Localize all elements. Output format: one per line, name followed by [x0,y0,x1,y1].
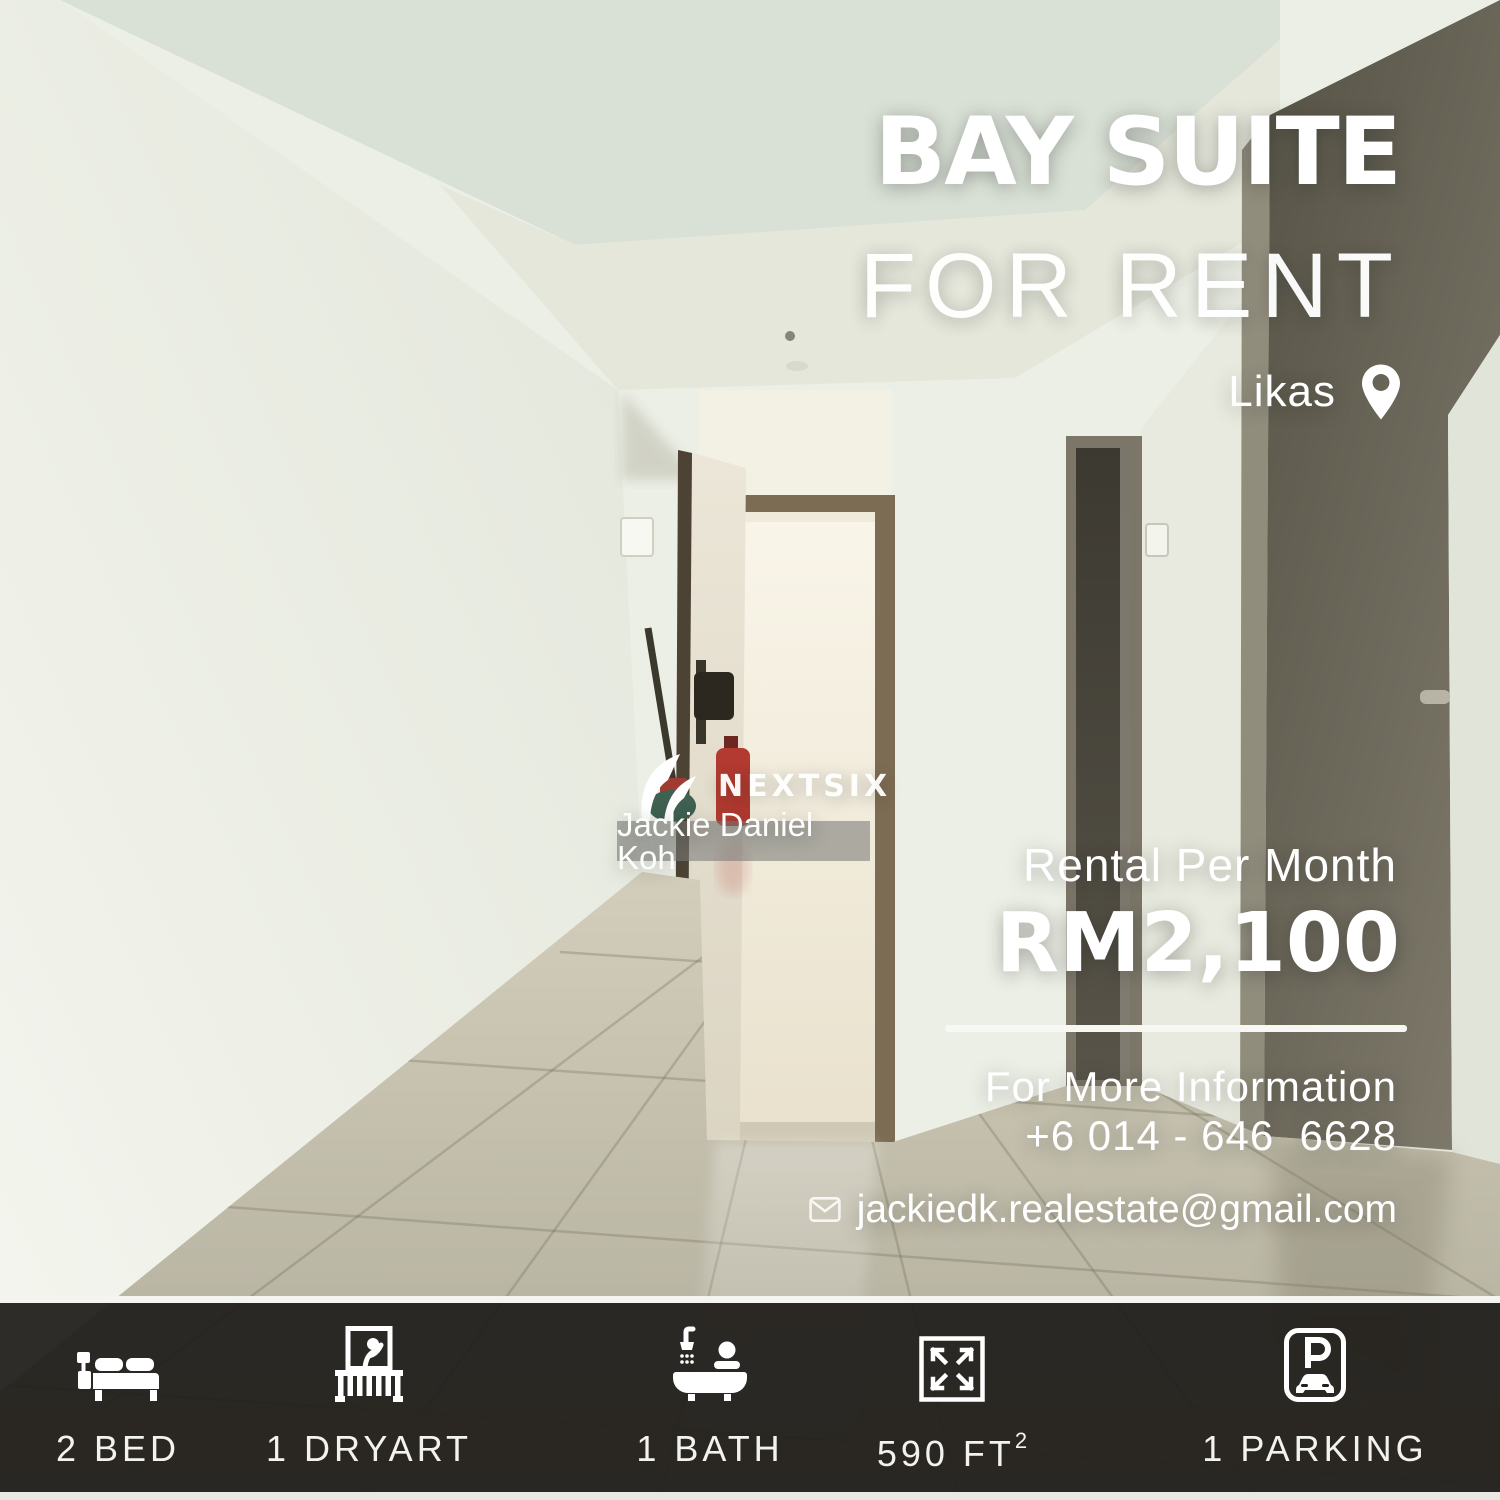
feature-bed: 2 BED [0,1326,258,1470]
feature-bath-label: 1 BATH [636,1428,783,1469]
brand-name: NEXTSIX [718,772,891,802]
email-icon [809,1196,841,1223]
divider-line [945,1025,1407,1032]
feature-bed-label: 2 BED [56,1428,180,1469]
feature-area: 590 FT2 [812,1326,1092,1475]
poster-subtitle: FOR RENT [860,240,1402,332]
phone-number: +6 014 - 646 6628 [1025,1115,1397,1157]
feature-area-label: 590 FT [877,1433,1015,1474]
bar-bottom-border [0,1492,1500,1500]
rental-label: Rental Per Month [1023,842,1397,888]
area-icon [812,1326,1092,1402]
parking-icon [1175,1326,1455,1402]
rental-poster: BAY SUITE FOR RENT Likas NEXTSIX Jackie … [0,0,1500,1500]
bed-icon [0,1326,258,1402]
email-address: jackiedk.realestate@gmail.com [857,1190,1397,1229]
agent-name: Jackie Daniel Koh [617,808,870,874]
bath-icon [570,1326,850,1402]
location-pin-icon [1362,362,1400,422]
feature-parking-label: 1 PARKING [1202,1428,1427,1469]
agent-name-bar: Jackie Daniel Koh [617,821,870,861]
feature-area-sup: 2 [1015,1428,1027,1453]
rental-price: RM2,100 [996,903,1400,985]
info-label: For More Information [985,1066,1397,1108]
bar-top-border [0,1296,1500,1303]
location-label: Likas [1228,370,1336,414]
poster-title: BAY SUITE [874,106,1400,200]
email-row: jackiedk.realestate@gmail.com [809,1190,1397,1229]
feature-balcony-label: 1 DRYART [266,1428,472,1469]
location-row: Likas [1228,362,1400,422]
feature-bath: 1 BATH [570,1326,850,1470]
feature-parking: 1 PARKING [1175,1326,1455,1470]
balcony-icon [229,1326,509,1402]
feature-balcony: 1 DRYART [229,1326,509,1470]
